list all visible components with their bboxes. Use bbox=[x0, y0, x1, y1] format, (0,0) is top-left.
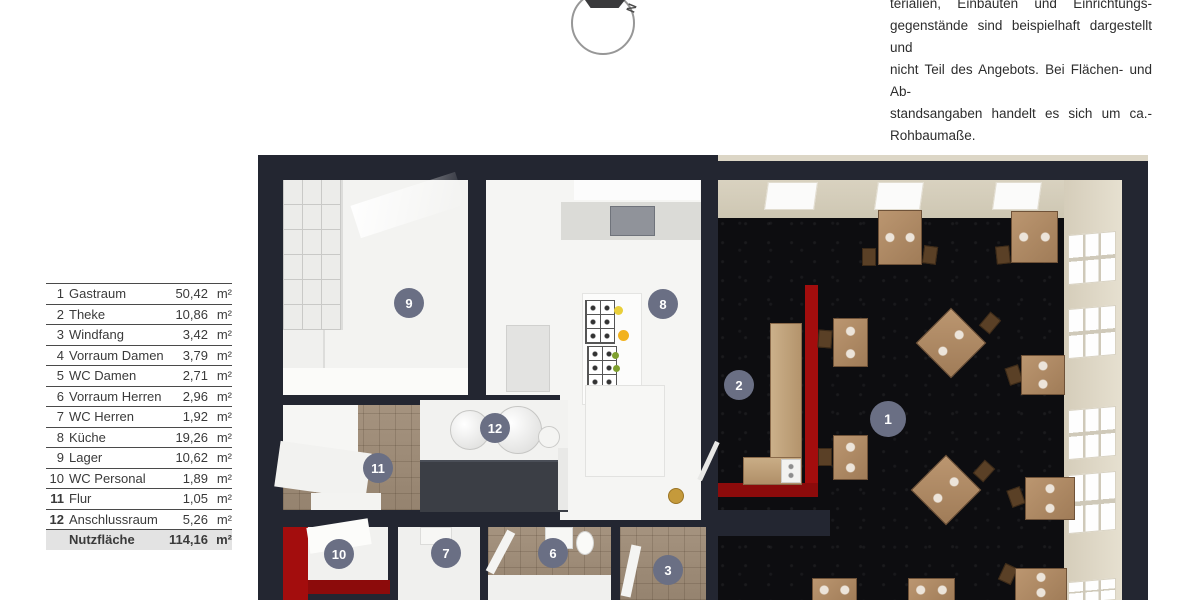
red-wall bbox=[718, 483, 818, 497]
utility-counter bbox=[420, 460, 568, 512]
table-row: 3Windfang3,42m² bbox=[46, 324, 232, 345]
room-number: 10 bbox=[46, 471, 69, 486]
table-row: 8Küche19,26m² bbox=[46, 427, 232, 448]
room-badge: 10 bbox=[324, 539, 354, 569]
room-badge: 3 bbox=[653, 555, 683, 585]
expose-page: N terialien, Einbauten und Einrichtungs-… bbox=[0, 0, 1200, 600]
table-row: 2Theke10,86m² bbox=[46, 304, 232, 325]
room-number: 1 bbox=[46, 286, 69, 301]
room-floor bbox=[488, 575, 611, 600]
room-number: 9 bbox=[46, 450, 69, 465]
disclaimer-line: terialien, Einbauten und Einrichtungs- bbox=[890, 0, 1152, 15]
room-badge: 7 bbox=[431, 538, 461, 568]
table-row: 12Anschlussraum5,26m² bbox=[46, 509, 232, 530]
room-area: 1,89 bbox=[166, 471, 208, 486]
room-number: 8 bbox=[46, 430, 69, 445]
table-row: 1Gastraum50,42m² bbox=[46, 283, 232, 304]
room-area-unit: m² bbox=[208, 512, 232, 527]
room-badge: 1 bbox=[870, 401, 906, 437]
table-row: 11Flur1,05m² bbox=[46, 488, 232, 509]
room-name: Vorraum Herren bbox=[69, 389, 166, 404]
room-badge: 9 bbox=[394, 288, 424, 318]
door-leaf bbox=[486, 530, 516, 575]
kitchen-sink bbox=[610, 206, 655, 236]
room-number: 7 bbox=[46, 409, 69, 424]
room-area: 1,92 bbox=[166, 409, 208, 424]
chair bbox=[1006, 486, 1025, 508]
flower-decor bbox=[614, 306, 623, 315]
room-area-unit: m² bbox=[208, 389, 232, 404]
room-area: 2,71 bbox=[166, 368, 208, 383]
room-badge: 12 bbox=[480, 413, 510, 443]
plant-decor bbox=[612, 352, 619, 359]
window bbox=[874, 182, 924, 210]
room-area: 10,86 bbox=[166, 307, 208, 322]
exterior-wall-edge bbox=[718, 155, 1148, 161]
dining-table bbox=[1011, 211, 1058, 263]
room-badge: 8 bbox=[648, 289, 678, 319]
room-area: 5,26 bbox=[166, 512, 208, 527]
skylight bbox=[574, 180, 700, 200]
dining-table bbox=[833, 318, 868, 367]
window bbox=[764, 182, 818, 210]
window bbox=[1068, 231, 1116, 285]
room-area: 3,42 bbox=[166, 327, 208, 342]
dining-table bbox=[911, 455, 982, 526]
ledge bbox=[558, 448, 568, 510]
disclaimer-line: nicht Teil des Angebots. Bei Flächen- un… bbox=[890, 59, 1152, 103]
disclaimer-line: standsangaben handelt es sich um ca.- bbox=[890, 103, 1152, 125]
window bbox=[1068, 578, 1116, 600]
room-badge: 6 bbox=[538, 538, 568, 568]
dining-table bbox=[1015, 568, 1067, 600]
dining-table bbox=[812, 578, 857, 600]
total-label: Nutzfläche bbox=[69, 532, 166, 547]
room-flur bbox=[283, 405, 420, 510]
disclaimer-line: Rohbaumaße. bbox=[890, 125, 1152, 147]
room-name: Flur bbox=[69, 491, 166, 506]
red-floor bbox=[308, 580, 390, 594]
room-area: 1,05 bbox=[166, 491, 208, 506]
room-area: 3,79 bbox=[166, 348, 208, 363]
room-number: 3 bbox=[46, 327, 69, 342]
room-name: Theke bbox=[69, 307, 166, 322]
chair bbox=[973, 460, 995, 483]
dining-table bbox=[1021, 355, 1065, 395]
room-area-unit: m² bbox=[208, 491, 232, 506]
room-area-unit: m² bbox=[208, 307, 232, 322]
room-name: Windfang bbox=[69, 327, 166, 342]
wall bbox=[718, 510, 830, 536]
window bbox=[1068, 406, 1116, 460]
dining-table bbox=[908, 578, 955, 600]
chair bbox=[818, 448, 832, 466]
room-area-unit: m² bbox=[208, 430, 232, 445]
room-name: Gastraum bbox=[69, 286, 166, 301]
room-badge: 11 bbox=[363, 453, 393, 483]
room-area-unit: m² bbox=[208, 348, 232, 363]
flower-decor bbox=[618, 330, 629, 341]
table-row: 10WC Personal1,89m² bbox=[46, 468, 232, 489]
room-number: 2 bbox=[46, 307, 69, 322]
room-area-unit: m² bbox=[208, 286, 232, 301]
trash-bin bbox=[668, 488, 684, 504]
room-area: 19,26 bbox=[166, 430, 208, 445]
room-number: 5 bbox=[46, 368, 69, 383]
dining-table bbox=[1025, 477, 1075, 520]
red-floor bbox=[283, 527, 308, 600]
kitchen-island bbox=[585, 385, 665, 477]
storage-shelves bbox=[283, 180, 343, 330]
total-area: 114,16 bbox=[166, 532, 208, 547]
room-lager bbox=[283, 180, 468, 395]
table-row: 4Vorraum Damen3,79m² bbox=[46, 345, 232, 366]
table-row: 5WC Damen2,71m² bbox=[46, 365, 232, 386]
red-wall bbox=[805, 285, 818, 497]
dining-table bbox=[916, 308, 987, 379]
chair bbox=[922, 245, 938, 265]
room-badge: 2 bbox=[724, 370, 754, 400]
chair bbox=[817, 330, 832, 349]
toilet bbox=[576, 531, 594, 555]
room-number: 11 bbox=[46, 491, 69, 506]
disclaimer-line: gegenstände sind beispielhaft dargestell… bbox=[890, 15, 1152, 59]
cabinet bbox=[311, 493, 381, 510]
room-area-unit: m² bbox=[208, 450, 232, 465]
floorplan: 9 8 1 2 12 11 10 7 6 3 bbox=[258, 155, 1148, 600]
chair bbox=[979, 312, 1001, 335]
table-row: 6Vorraum Herren2,96m² bbox=[46, 386, 232, 407]
pipe bbox=[538, 426, 560, 448]
room-number: 6 bbox=[46, 389, 69, 404]
window bbox=[992, 182, 1042, 210]
room-name: Küche bbox=[69, 430, 166, 445]
bar-sink bbox=[781, 459, 801, 483]
chair bbox=[862, 248, 876, 266]
chair bbox=[995, 245, 1011, 264]
room-area-unit: m² bbox=[208, 368, 232, 383]
window bbox=[1068, 305, 1116, 359]
total-area-unit: m² bbox=[208, 532, 232, 547]
room-name: WC Personal bbox=[69, 471, 166, 486]
room-name: WC Herren bbox=[69, 409, 166, 424]
room-name: WC Damen bbox=[69, 368, 166, 383]
room-gastraum bbox=[718, 180, 1122, 600]
room-area: 2,96 bbox=[166, 389, 208, 404]
room-area-unit: m² bbox=[208, 471, 232, 486]
table-row: 9Lager10,62m² bbox=[46, 447, 232, 468]
low-wall bbox=[283, 368, 468, 395]
disclaimer-text: terialien, Einbauten und Einrichtungs- g… bbox=[890, 0, 1152, 147]
room-name: Vorraum Damen bbox=[69, 348, 166, 363]
room-area: 50,42 bbox=[166, 286, 208, 301]
room-area: 10,62 bbox=[166, 450, 208, 465]
room-area-table: 1Gastraum50,42m² 2Theke10,86m² 3Windfang… bbox=[46, 283, 232, 550]
kitchen-cabinet bbox=[506, 325, 550, 392]
room-name: Anschlussraum bbox=[69, 512, 166, 527]
room-area-unit: m² bbox=[208, 409, 232, 424]
table-total-row: Nutzfläche114,16m² bbox=[46, 529, 232, 550]
dining-table bbox=[833, 435, 868, 480]
stove-burners-icon bbox=[585, 300, 615, 344]
plant-decor bbox=[613, 365, 620, 372]
dining-table bbox=[878, 210, 922, 265]
room-name: Lager bbox=[69, 450, 166, 465]
compass-needle-icon bbox=[585, 0, 625, 8]
room-number: 4 bbox=[46, 348, 69, 363]
door-leaf bbox=[621, 545, 642, 598]
ceiling-light-reflection bbox=[350, 172, 465, 238]
table-row: 7WC Herren1,92m² bbox=[46, 406, 232, 427]
room-area-unit: m² bbox=[208, 327, 232, 342]
window bbox=[1068, 471, 1116, 534]
room-number: 12 bbox=[46, 512, 69, 527]
